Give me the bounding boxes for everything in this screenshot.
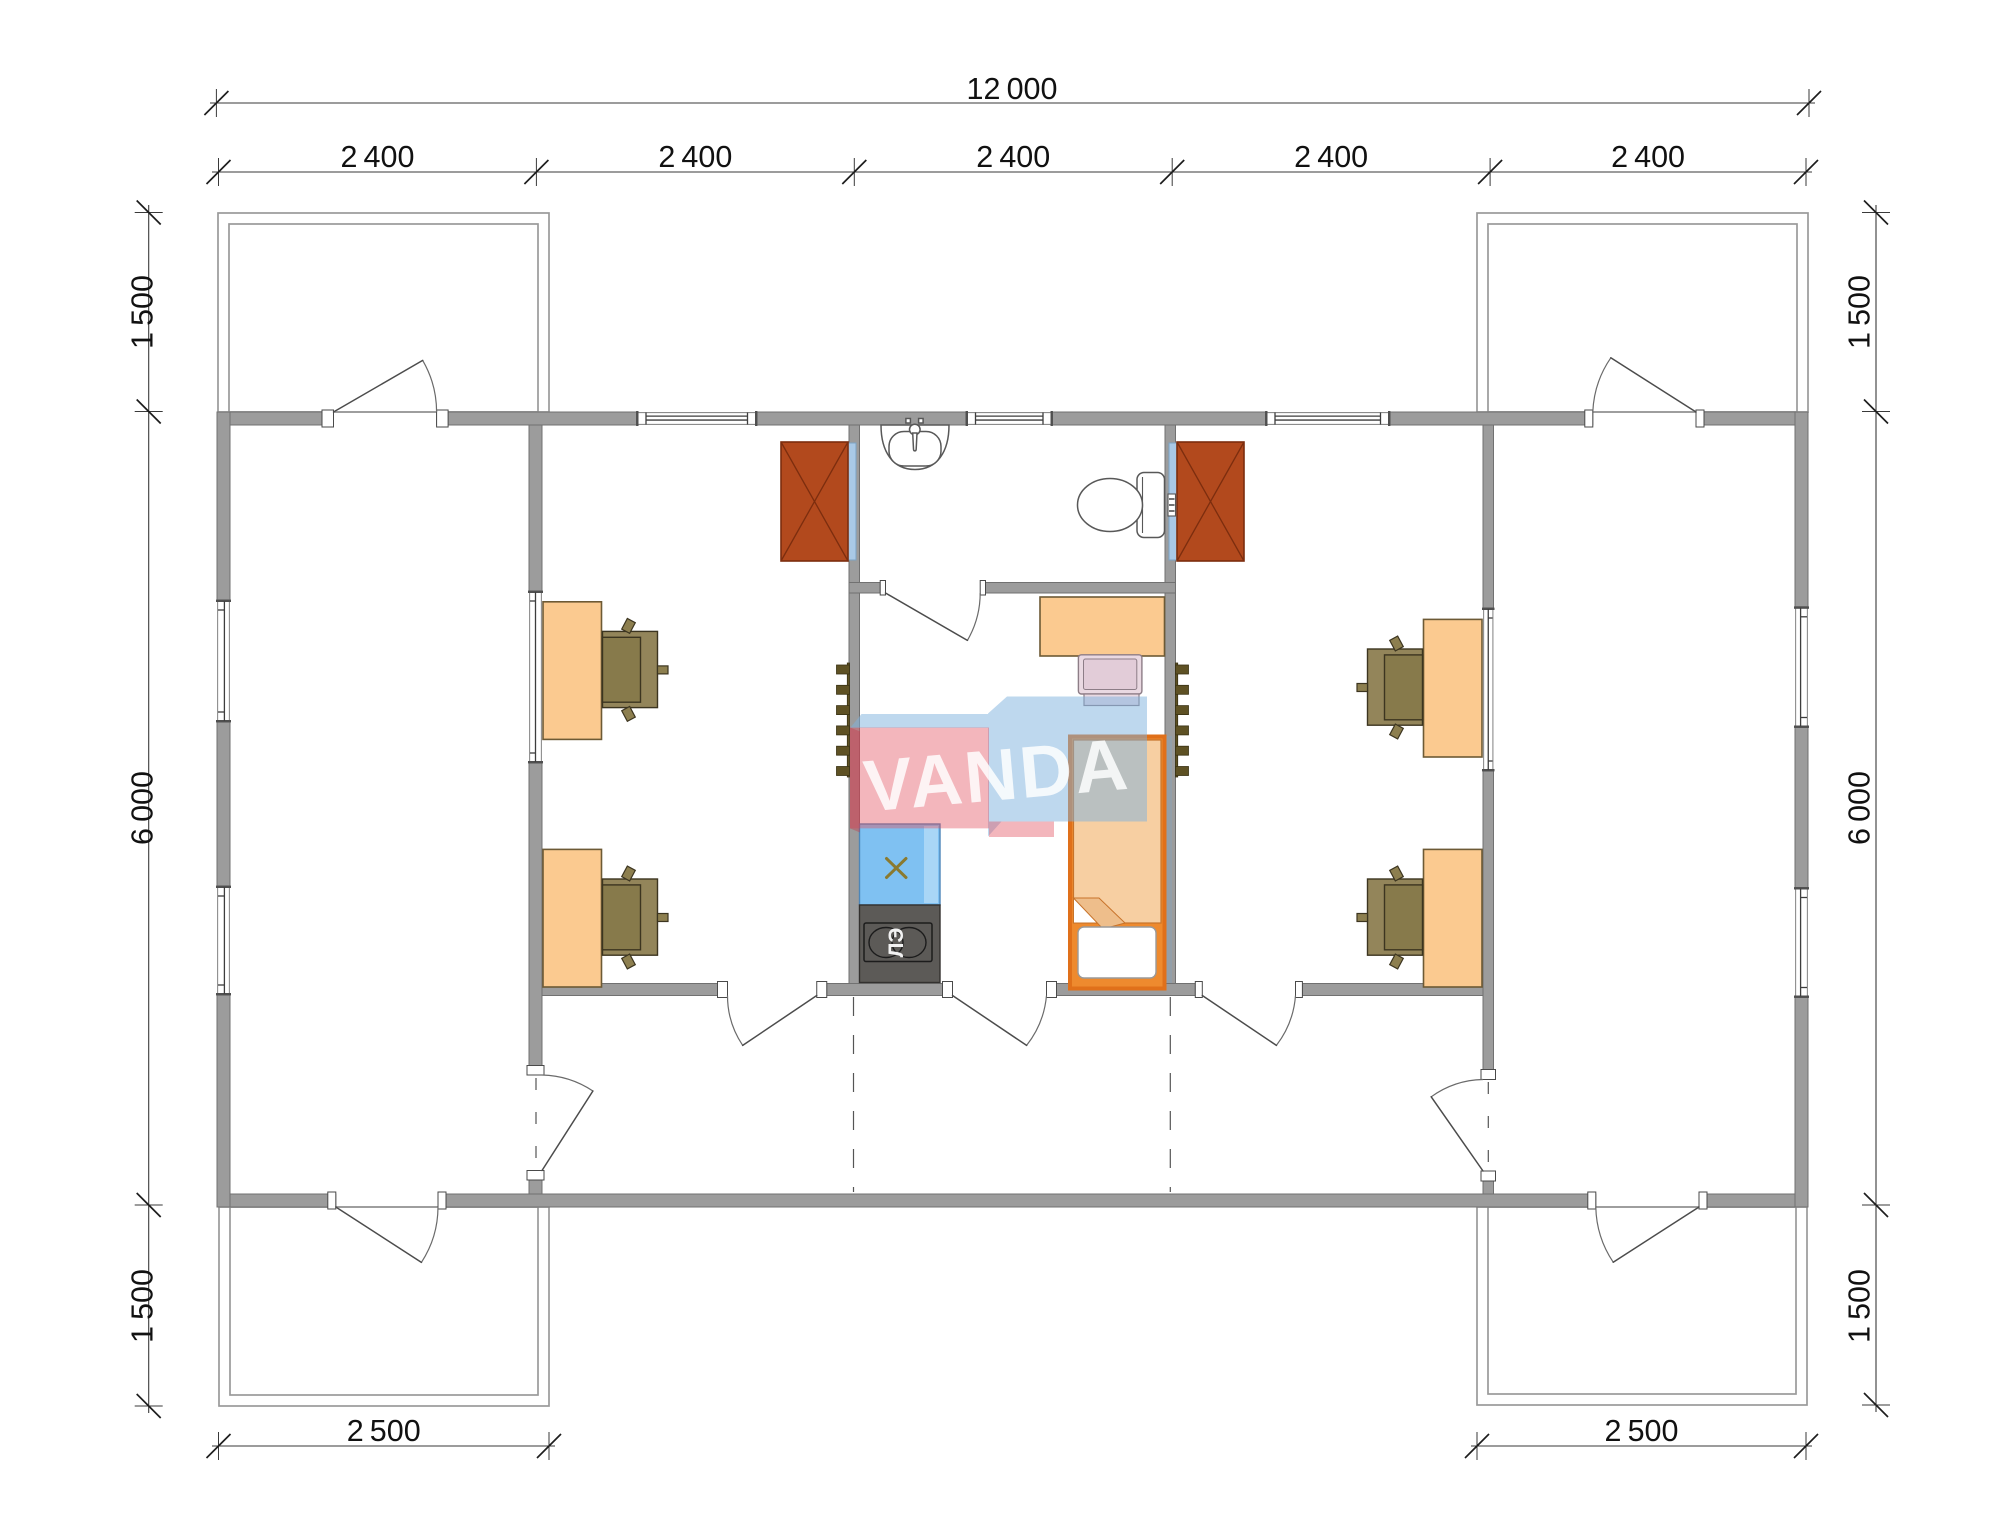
svg-text:12 000: 12 000 xyxy=(967,72,1058,106)
svg-text:2 400: 2 400 xyxy=(976,140,1050,174)
svg-text:2 400: 2 400 xyxy=(340,140,414,174)
svg-text:1 500: 1 500 xyxy=(126,275,160,349)
svg-text:2 400: 2 400 xyxy=(658,140,732,174)
svg-text:2 400: 2 400 xyxy=(1294,140,1368,174)
svg-text:2 400: 2 400 xyxy=(1611,140,1685,174)
svg-text:6 000: 6 000 xyxy=(126,771,160,845)
svg-text:6 000: 6 000 xyxy=(1843,771,1877,845)
svg-text:2 500: 2 500 xyxy=(1605,1414,1679,1448)
svg-text:2 500: 2 500 xyxy=(347,1414,421,1448)
svg-text:ЛЭ: ЛЭ xyxy=(885,928,908,958)
svg-text:1 500: 1 500 xyxy=(126,1269,160,1343)
svg-text:1 500: 1 500 xyxy=(1843,275,1877,349)
svg-text:1 500: 1 500 xyxy=(1843,1269,1877,1343)
